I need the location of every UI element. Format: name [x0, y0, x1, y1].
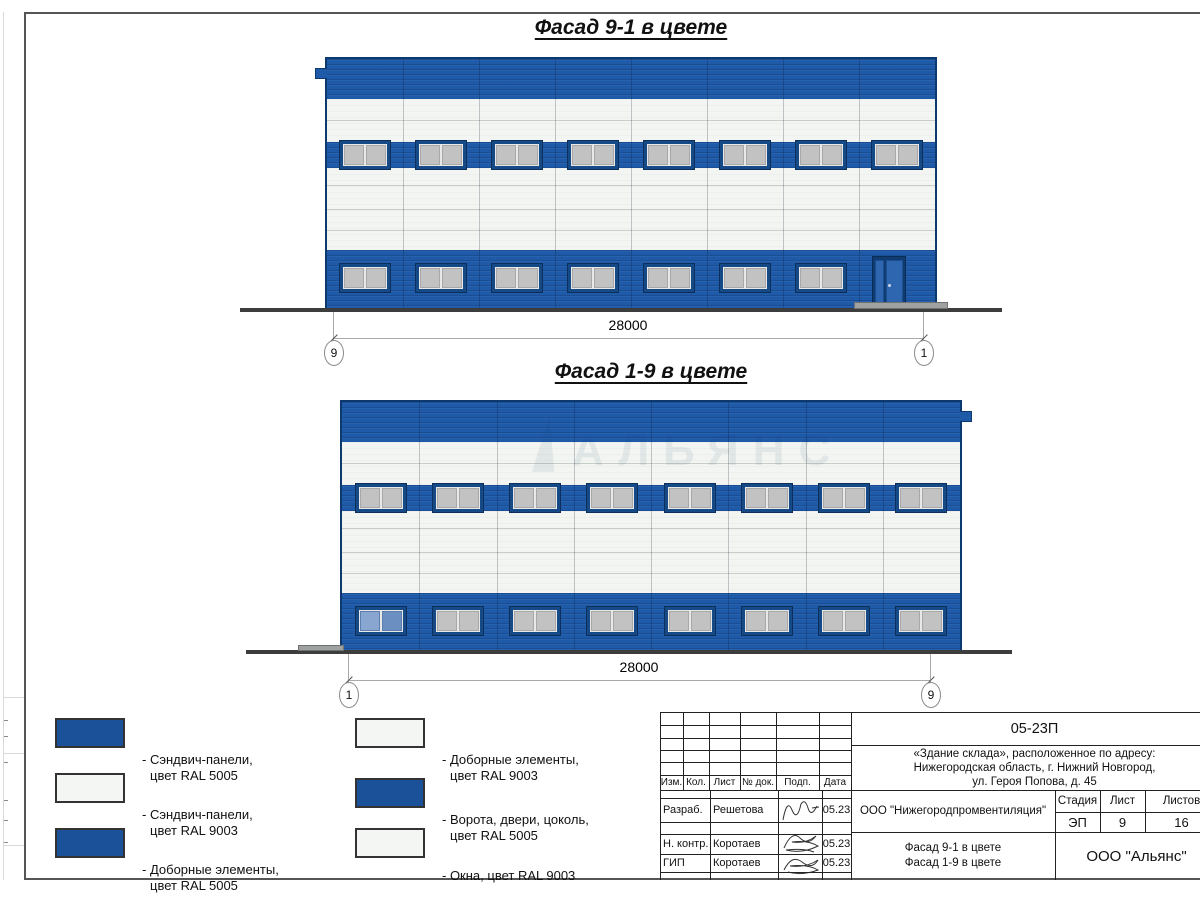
axis-marker-1: 1 — [339, 682, 359, 708]
date-razrab: 05.23 — [822, 798, 851, 822]
doc-number: 05-23П — [851, 712, 1200, 745]
name-nkontr: Коротаев — [713, 834, 777, 854]
table-border — [660, 762, 851, 763]
ramp-strip — [298, 645, 344, 651]
axis-marker-1: 1 — [914, 340, 934, 366]
window — [720, 141, 770, 169]
company-name: ООО "Альянс" — [1055, 832, 1200, 880]
sheet-value: 9 — [1100, 812, 1145, 832]
col-podp: Подп. — [776, 775, 819, 790]
margin-line — [3, 753, 24, 754]
window-row-middle — [342, 483, 960, 513]
signature-razrab — [779, 796, 821, 824]
window — [492, 141, 542, 169]
margin-tick — [4, 820, 8, 821]
table-border — [1055, 812, 1200, 813]
table-border — [851, 712, 852, 880]
table-border — [660, 712, 1200, 713]
table-border — [660, 712, 661, 880]
window — [742, 607, 792, 635]
table-border — [819, 712, 820, 790]
axis-marker-9: 9 — [921, 682, 941, 708]
facade-1-9-title-text: Фасад 1-9 в цвете — [555, 360, 747, 383]
window — [587, 484, 637, 512]
table-border — [660, 750, 851, 751]
table-border — [851, 745, 1200, 746]
margin-tick — [4, 762, 8, 763]
window — [587, 607, 637, 635]
sheet-label: Лист — [1100, 790, 1145, 812]
window — [796, 264, 846, 292]
table-border — [1055, 790, 1056, 880]
window — [510, 484, 560, 512]
table-border — [778, 790, 779, 880]
col-list: Лист — [709, 775, 740, 790]
col-izm: Изм. — [660, 775, 683, 790]
date-nkontr: 05.23 — [822, 834, 851, 854]
margin-tick — [4, 800, 8, 801]
window — [720, 264, 770, 292]
window — [896, 607, 946, 635]
role-nkontr: Н. контр. — [663, 834, 710, 854]
window — [433, 484, 483, 512]
window — [665, 484, 715, 512]
window — [416, 264, 466, 292]
table-border — [710, 790, 711, 880]
col-ndok: № док. — [740, 775, 776, 790]
facade-9-1-building — [325, 57, 937, 310]
legend-swatch-windows-9003 — [355, 828, 425, 858]
frame-left — [24, 12, 26, 880]
window-row-bottom — [342, 606, 960, 636]
sheets-label: Листов — [1145, 790, 1200, 812]
window — [742, 484, 792, 512]
col-data: Дата — [819, 775, 851, 790]
door-handle-icon — [888, 284, 891, 287]
table-border — [822, 790, 823, 880]
window — [896, 484, 946, 512]
window — [796, 141, 846, 169]
window — [644, 264, 694, 292]
door-threshold — [854, 302, 948, 309]
table-border — [683, 712, 684, 790]
window — [644, 141, 694, 169]
legend-swatch-trim-9003 — [355, 718, 425, 748]
facade-9-1-title-text: Фасад 9-1 в цвете — [535, 16, 727, 39]
legend-label: - Доборные элементы,цвет RAL 5005 — [142, 830, 279, 900]
col-kol: Кол. — [683, 775, 709, 790]
table-border — [709, 712, 710, 790]
table-border — [660, 725, 851, 726]
window — [492, 264, 542, 292]
window — [340, 264, 390, 292]
dimension-line — [348, 680, 930, 681]
table-border — [776, 712, 777, 790]
legend-swatch-gates-5005 — [355, 778, 425, 808]
role-gip: ГИП — [663, 854, 710, 872]
window — [433, 607, 483, 635]
window-row-middle — [327, 140, 935, 170]
legend-swatch-trim-5005 — [55, 828, 125, 858]
title-block: 05-23П «Здание склада», расположенное по… — [660, 712, 1200, 880]
legend-label: - Окна, цвет RAL 9003 — [442, 836, 575, 900]
dimension-line — [333, 338, 923, 339]
window — [819, 607, 869, 635]
facade-1-9-building: АЛЬЯНС — [340, 400, 962, 652]
axis-marker-9: 9 — [324, 340, 344, 366]
drawing-sheet: Фасад 9-1 в цвете 28000 9 1 Фасад 1-9 в … — [0, 0, 1200, 900]
window-row-bottom — [327, 263, 935, 293]
window — [568, 264, 618, 292]
window — [665, 607, 715, 635]
role-razrab: Разраб. — [663, 798, 710, 822]
window — [872, 141, 922, 169]
ground-line — [246, 650, 1012, 654]
table-border — [660, 775, 851, 776]
name-gip: Коротаев — [713, 854, 777, 872]
frame-top — [24, 12, 1200, 14]
window — [356, 484, 406, 512]
date-gip: 05.23 — [822, 854, 851, 872]
sheet-title: Фасад 9-1 в цвете Фасад 1-9 в цвете — [851, 832, 1055, 880]
margin-tick — [4, 842, 8, 843]
stage-value: ЭП — [1055, 812, 1100, 832]
parapet-tab — [959, 411, 972, 422]
window — [819, 484, 869, 512]
project-address: «Здание склада», расположенное по адресу… — [851, 745, 1200, 790]
facade-1-9-title: Фасад 1-9 в цвете — [340, 360, 962, 384]
table-border — [660, 790, 1200, 791]
name-razrab: Решетова — [713, 798, 777, 822]
table-border — [660, 738, 851, 739]
window — [356, 607, 406, 635]
margin-line — [3, 697, 24, 698]
window — [416, 141, 466, 169]
table-border — [1145, 790, 1146, 832]
window — [340, 141, 390, 169]
table-border — [740, 712, 741, 790]
table-border — [851, 832, 1200, 833]
sheets-value: 16 — [1145, 812, 1200, 832]
dimension-value: 28000 — [348, 659, 930, 675]
stage-label: Стадия — [1055, 790, 1100, 812]
margin-line — [3, 845, 24, 846]
table-border — [1100, 790, 1101, 832]
design-org: ООО "Нижегородпромвентиляция" — [851, 790, 1055, 832]
window — [568, 141, 618, 169]
margin-line — [3, 12, 4, 880]
facade-9-1-title: Фасад 9-1 в цвете — [325, 16, 937, 40]
legend-swatch-sandwich-5005 — [55, 718, 125, 748]
legend-swatch-sandwich-9003 — [55, 773, 125, 803]
window — [510, 607, 560, 635]
margin-tick — [4, 720, 8, 721]
margin-tick — [4, 736, 8, 737]
signature-korotaev — [778, 828, 822, 878]
dimension-value: 28000 — [333, 317, 923, 333]
